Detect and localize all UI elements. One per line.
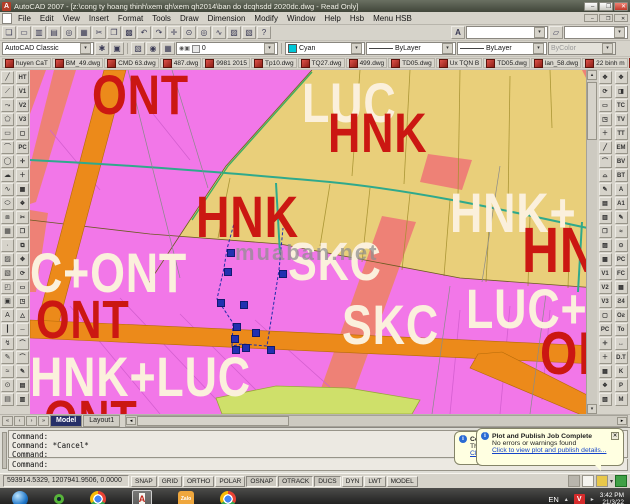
drawing-file-button[interactable]: BM_49.dwg	[52, 58, 103, 68]
dim-style-combo[interactable]: ▾	[564, 26, 628, 39]
modify-tool-icon[interactable]: PC	[599, 323, 612, 336]
drawing-file-button[interactable]: TQ27.dwg	[298, 58, 345, 68]
modify-tool-icon[interactable]: ✎	[599, 183, 612, 196]
selection-grip[interactable]	[217, 299, 225, 307]
modify-tool-icon[interactable]: V2	[599, 281, 612, 294]
dwg-file-icon	[5, 59, 14, 68]
chevron-down-icon: ▾	[602, 43, 613, 54]
custom-tool-button[interactable]: Oƨ	[615, 309, 628, 322]
menu-item[interactable]: Modify	[250, 14, 282, 23]
draw-tool-icon[interactable]: ⬭	[1, 197, 14, 210]
tab-nav-icon[interactable]: »	[38, 416, 49, 426]
modify-tool-icon[interactable]: ▨	[599, 239, 612, 252]
draw-tool-icon[interactable]: ✎	[1, 351, 14, 364]
draw-tool-icon[interactable]: ⧈	[1, 211, 14, 224]
status-toggle-button[interactable]: OSNAP	[246, 476, 277, 487]
layer-combo[interactable]: ◉▣ 0 ▾	[176, 42, 278, 55]
text-style-icon[interactable]: A	[451, 26, 465, 39]
windows-taskbar: A Zalo EN ▴ V ▸ 3:42 PM 21/3/22	[0, 488, 630, 504]
info-icon: i	[459, 435, 467, 443]
autocad-icon: A	[139, 493, 146, 504]
layers-properties-toolbar: AutoCAD Classic ▾ ✱▣ ▧◉▦ ◉▣ 0 ▾ Cyan ▾ B…	[0, 41, 630, 57]
draw-tool-icon[interactable]: ▧	[1, 267, 14, 280]
chevron-down-icon[interactable]: ▾	[351, 43, 362, 54]
zalo-icon[interactable]: Zalo	[178, 491, 194, 504]
custom-tool-button[interactable]: PC	[615, 253, 628, 266]
custom-tool-button[interactable]: ✥	[16, 253, 29, 266]
draw-tool-icon[interactable]: ≈	[1, 365, 14, 378]
draw-tool-icon[interactable]: ∿	[1, 183, 14, 196]
tab-nav-icon[interactable]: «	[2, 416, 13, 426]
custom-tool-button[interactable]: TV	[615, 113, 628, 126]
status-bar: 593914.5329, 1207941.9506, 0.0000 SNAPGR…	[0, 473, 630, 488]
status-toggle-button[interactable]: LWT	[364, 476, 385, 487]
modify-tool-icon[interactable]: ▤	[599, 197, 612, 210]
drawing-file-label: 9981 2015	[216, 60, 247, 67]
dwg-file-icon	[301, 59, 310, 68]
tray-expand-icon[interactable]: ▴	[565, 496, 568, 503]
draw-toolbar: ╱⟋⤳⬠▭⌒◯☁∿⬭⧈▦·▨▧◰▣A┃↯✎≈⊙▤ HTV1V2V3▢PC✛＋▦❖…	[0, 70, 30, 414]
custom-tool-button[interactable]: ❖	[16, 197, 29, 210]
layer-states-icon[interactable]: ◉	[146, 42, 160, 55]
command-window-grip[interactable]	[2, 432, 7, 469]
custom-tool-button[interactable]: ◳	[16, 295, 29, 308]
modify-tool-icon[interactable]: V3	[599, 295, 612, 308]
dwg-file-icon	[107, 59, 116, 68]
linetype-sample	[369, 48, 393, 49]
custom-tool-button[interactable]: HT	[16, 71, 29, 84]
draw-tool-icon[interactable]: ▤	[1, 393, 14, 406]
custom-tool-button[interactable]: ⧉	[16, 239, 29, 252]
green-ring-app-icon[interactable]	[54, 494, 64, 504]
custom-tool-button[interactable]: ✂	[16, 211, 29, 224]
dwg-file-icon	[163, 59, 172, 68]
title-bar: A AutoCAD 2007 - [z:\cong ty hoang thinh…	[0, 0, 630, 12]
custom-tool-button[interactable]: A1	[615, 197, 628, 210]
minimize-button[interactable]: –	[584, 2, 598, 11]
drawing-file-label: huyen CaT	[16, 60, 48, 67]
balloon-title: Plot and Publish Job Complete	[492, 433, 592, 440]
clean-screen-button[interactable]	[615, 475, 627, 487]
info-icon: i	[481, 432, 489, 440]
balloon-link[interactable]: Click to view plot and publish details..…	[492, 447, 619, 454]
draw-tool-icon[interactable]: ↯	[1, 337, 14, 350]
autocad-window: A AutoCAD 2007 - [z:\cong ty hoang thinh…	[0, 0, 630, 504]
workspace-settings-icon[interactable]: ✱	[95, 42, 109, 55]
modify-tool-icon[interactable]: ⟳	[599, 85, 612, 98]
vertical-scroll-thumb[interactable]	[587, 82, 597, 140]
autocad-app-icon: A	[2, 2, 11, 11]
browser-sphere-icon[interactable]	[12, 491, 28, 504]
custom-tool-button[interactable]: ◨	[615, 85, 628, 98]
draw-tool-icon[interactable]: ·	[1, 239, 14, 252]
dwg-file-icon	[55, 59, 64, 68]
dim-style-icon[interactable]: ▱	[549, 26, 563, 39]
modify-tool-icon[interactable]: ╱	[599, 141, 612, 154]
status-toggle-button[interactable]: SNAP	[131, 476, 157, 487]
modify-tool-icon[interactable]: ▩	[599, 253, 612, 266]
drawing-file-label: Ux TQN B	[450, 60, 480, 67]
selection-grip[interactable]	[242, 344, 250, 352]
horizontal-scroll-thumb[interactable]	[137, 416, 289, 426]
custom-tool-button[interactable]: BT	[615, 169, 628, 182]
drawing-file-label: TQ27.dwg	[312, 60, 342, 67]
draw-tool-icon[interactable]: ⌒	[1, 141, 14, 154]
chrome-icon[interactable]	[90, 491, 106, 504]
plot-preview-icon[interactable]: ◎	[62, 26, 76, 39]
status-toggle-button[interactable]: POLAR	[215, 476, 245, 487]
drawing-file-button[interactable]: 499.dwg	[346, 58, 388, 68]
selection-grip[interactable]	[232, 346, 240, 354]
tray-arrow-icon[interactable]: ▸	[591, 496, 594, 503]
modify-tool-icon[interactable]: ＋	[599, 351, 612, 364]
custom-tool-button[interactable]: A	[615, 183, 628, 196]
custom-tool-button[interactable]: D.T	[615, 351, 628, 364]
tab-nav-icon[interactable]: ‹	[14, 416, 25, 426]
drawing-file-button[interactable]: lan_58.dwg	[531, 58, 581, 68]
custom-tool-button[interactable]: EM	[615, 141, 628, 154]
undo-icon[interactable]: ↶	[137, 26, 151, 39]
drawing-file-button[interactable]: 487.dwg	[160, 58, 202, 68]
custom-tool-button[interactable]: ✥	[615, 71, 628, 84]
custom-tool-button[interactable]: ▤	[16, 379, 29, 392]
draw-tool-icon[interactable]: ⤳	[1, 99, 14, 112]
draw-tool-icon[interactable]: ▦	[1, 225, 14, 238]
pan-icon[interactable]: ✛	[167, 26, 181, 39]
modify-tool-icon[interactable]: ▢	[599, 309, 612, 322]
modify-tool-icon[interactable]: ▧	[599, 393, 612, 406]
language-indicator[interactable]: EN	[548, 495, 558, 504]
toolbar-lock-icon[interactable]	[596, 475, 608, 487]
selection-grip[interactable]	[233, 323, 241, 331]
modify-tool-icon[interactable]: ✥	[599, 71, 612, 84]
custom-tool-button[interactable]: V1	[16, 85, 29, 98]
lineweight-combo[interactable]: ByLayer ▾	[457, 42, 547, 55]
close-button[interactable]: ✕	[614, 2, 628, 11]
dwg-file-icon	[439, 59, 448, 68]
cut-icon[interactable]: ✂	[92, 26, 106, 39]
balloon-close-icon[interactable]: ✕	[611, 432, 619, 440]
menu-item[interactable]: Menu HSB	[369, 14, 416, 23]
standard-toolbar: ❏▭▥▤◎▦✂❐▩↶↷✛⊙◎∿▨▧? A ▾ ▱ ▾	[0, 25, 630, 41]
selection-grip[interactable]	[227, 249, 235, 257]
help-icon[interactable]: ?	[257, 26, 271, 39]
drawing-file-button[interactable]: TD05.dwg	[483, 58, 530, 68]
modify-tool-icon[interactable]: ❖	[599, 379, 612, 392]
lineweight-value: ByLayer	[486, 45, 512, 52]
drawing-file-button[interactable]: Tp10.dwg	[251, 58, 297, 68]
chrome-icon[interactable]	[220, 491, 236, 504]
custom-tool-button[interactable]: V3	[16, 113, 29, 126]
custom-tool-button[interactable]: ▦	[615, 281, 628, 294]
custom-tool-button[interactable]: P	[615, 379, 628, 392]
draw-tool-icon[interactable]: ▨	[1, 253, 14, 266]
modify-tool-icon[interactable]: ▭	[599, 99, 612, 112]
draw-tool-icon[interactable]: ⊙	[1, 379, 14, 392]
scroll-down-icon[interactable]: ▾	[587, 404, 597, 414]
menu-item[interactable]: Draw	[176, 14, 203, 23]
draw-tool-icon[interactable]: A	[1, 309, 14, 322]
status-toggle-button[interactable]: DUCS	[314, 476, 340, 487]
drawing-file-icon	[2, 13, 12, 24]
draw-tool-icon[interactable]: ▣	[1, 295, 14, 308]
workspace-combo[interactable]: AutoCAD Classic ▾	[2, 42, 94, 55]
menu-item[interactable]: Format	[114, 14, 147, 23]
custom-tool-button[interactable]: To	[615, 323, 628, 336]
menu-item[interactable]: Hsb	[346, 14, 368, 23]
v-app-tray-icon[interactable]: V	[574, 494, 585, 504]
drawing-file-button[interactable]: 22 binh m	[582, 58, 628, 68]
save-icon[interactable]: ▥	[32, 26, 46, 39]
custom-tool-button[interactable]: ≈	[615, 225, 628, 238]
chevron-down-icon[interactable]: ▾	[534, 27, 545, 38]
drawing-file-label: BM_49.dwg	[66, 60, 100, 67]
menu-item[interactable]: Help	[320, 14, 344, 23]
custom-tool-button[interactable]: BV	[615, 155, 628, 168]
drawing-file-button[interactable]: CMD 63.dwg	[104, 58, 159, 68]
dwg-file-icon	[585, 59, 594, 68]
custom-tool-button[interactable]: △	[16, 309, 29, 322]
layer-value: 0	[202, 45, 206, 52]
plot-details-icon[interactable]	[582, 475, 594, 487]
vertical-scrollbar[interactable]: ▴ ▾	[586, 70, 597, 414]
custom-tool-button[interactable]: ⌒	[16, 351, 29, 364]
color-value: Cyan	[299, 45, 315, 52]
draw-tool-icon[interactable]: ▭	[1, 127, 14, 140]
redo-icon[interactable]: ↷	[152, 26, 166, 39]
workspace-value: AutoCAD Classic	[5, 45, 59, 52]
selection-grip[interactable]	[240, 301, 248, 309]
layer-properties-icon[interactable]: ▧	[131, 42, 145, 55]
drawing-file-label: 499.dwg	[360, 60, 385, 67]
maximize-button[interactable]: ❐	[599, 2, 613, 11]
design-center-icon[interactable]: ▧	[242, 26, 256, 39]
menu-item[interactable]: Dimension	[204, 14, 250, 23]
status-tray-arrow-icon[interactable]: ▾	[610, 478, 613, 485]
custom-tool-button[interactable]: ▦	[16, 183, 29, 196]
chevron-down-icon[interactable]: ▾	[533, 43, 544, 54]
draw-tool-icon[interactable]: ⬠	[1, 113, 14, 126]
copy-icon[interactable]: ❐	[107, 26, 121, 39]
selection-grip[interactable]	[279, 270, 287, 278]
custom-tool-button[interactable]: Ƨ4	[615, 295, 628, 308]
status-toggle-button[interactable]: DYN	[342, 476, 364, 487]
custom-tool-button[interactable]: ✎	[16, 365, 29, 378]
custom-tool-button[interactable]: ─	[16, 323, 29, 336]
menu-bar: FileEditViewInsertFormatToolsDrawDimensi…	[0, 12, 630, 25]
clock-time: 3:42 PM	[600, 492, 624, 499]
open-icon[interactable]: ▭	[17, 26, 31, 39]
land-use-map	[30, 70, 597, 414]
menu-item[interactable]: File	[14, 14, 35, 23]
draw-tool-icon[interactable]: ╱	[1, 71, 14, 84]
text-style-combo[interactable]: ▾	[466, 26, 548, 39]
status-toggle-button[interactable]: OTRACK	[278, 476, 313, 487]
scroll-right-icon[interactable]: ▸	[617, 417, 627, 425]
modify-tool-icon[interactable]: V1	[599, 267, 612, 280]
drawing-file-label: Tp10.dwg	[265, 60, 294, 67]
layer-color-swatch	[192, 45, 200, 53]
modify-toolbar: ✥⟳▭◳＋╱⌒⌓✎▤▥❐▨▩V1V2V3▢PC✛＋▦❖▧ ✥◨TCTVTTEMB…	[597, 70, 630, 414]
linetype-value: ByLayer	[395, 45, 421, 52]
zoom-window-icon[interactable]: ◎	[197, 26, 211, 39]
chevron-down-icon[interactable]: ▾	[264, 43, 275, 54]
drawing-file-label: 22 binh m	[596, 60, 625, 67]
draw-tool-icon[interactable]: ☁	[1, 169, 14, 182]
drawing-file-button[interactable]: Ux TQN B	[436, 58, 483, 68]
drawing-file-label: TD05.dwg	[497, 60, 527, 67]
workspace-save-icon[interactable]: ▣	[110, 42, 124, 55]
dwg-file-icon	[486, 59, 495, 68]
color-combo[interactable]: Cyan ▾	[285, 42, 365, 55]
chevron-down-icon[interactable]: ▾	[442, 43, 453, 54]
drawing-file-button[interactable]: 9981 2015	[202, 58, 250, 68]
menu-item[interactable]: Insert	[85, 14, 113, 23]
drawing-canvas[interactable]: ONTLUCHNKHNKHNK+HNC+ONTSKCSKCONTLUC+ONHN…	[30, 70, 597, 414]
custom-tool-button[interactable]: V2	[16, 99, 29, 112]
menu-item[interactable]: Tools	[148, 14, 175, 23]
dwg-file-icon	[349, 59, 358, 68]
selection-grip[interactable]	[252, 329, 260, 337]
plot-publish-balloon[interactable]: i Plot and Publish Job Complete ✕ No err…	[476, 428, 624, 466]
zoom-realtime-icon[interactable]: ⊙	[182, 26, 196, 39]
custom-tool-button[interactable]: FC	[615, 267, 628, 280]
drawing-files-toolbar: huyen CaT BM_49.dwg CMD 63.dwg 487.dwg 9…	[0, 57, 630, 70]
custom-tool-button[interactable]: TC	[615, 99, 628, 112]
plotstyle-value: ByColor	[551, 45, 576, 52]
draw-tool-icon[interactable]: ┃	[1, 323, 14, 336]
layer-state-icons: ◉▣	[179, 45, 190, 52]
custom-tool-button[interactable]: ▭	[16, 281, 29, 294]
custom-tool-button[interactable]: M	[615, 393, 628, 406]
custom-tool-button[interactable]: ❐	[16, 225, 29, 238]
modify-tool-icon[interactable]: ◳	[599, 113, 612, 126]
properties-icon[interactable]: ▨	[227, 26, 241, 39]
scroll-up-icon[interactable]: ▴	[587, 70, 597, 80]
linetype-combo[interactable]: ByLayer ▾	[366, 42, 456, 55]
modify-tool-icon[interactable]: ⌓	[599, 169, 612, 182]
selection-grip[interactable]	[224, 268, 232, 276]
dwg-file-icon	[534, 59, 543, 68]
custom-tool-button[interactable]: ⊙	[615, 239, 628, 252]
layout1-tab[interactable]: Layout1	[83, 415, 120, 427]
custom-tool-button[interactable]: K	[615, 365, 628, 378]
publish-icon[interactable]: ▦	[77, 26, 91, 39]
modify-tool-icon[interactable]: ⌒	[599, 155, 612, 168]
drawing-file-label: 487.dwg	[174, 60, 199, 67]
custom-tool-button[interactable]: ✎	[615, 211, 628, 224]
custom-tool-button[interactable]: ▥	[16, 393, 29, 406]
status-toggle-button[interactable]: GRID	[158, 476, 182, 487]
plot-icon[interactable]: ▤	[47, 26, 61, 39]
window-title: AutoCAD 2007 - [z:\cong ty hoang thinh\x…	[14, 2, 581, 11]
modify-tool-icon[interactable]: ▥	[599, 211, 612, 224]
tab-nav-icon[interactable]: ›	[26, 416, 37, 426]
drawing-file-label: TD05.dwg	[402, 60, 432, 67]
notification-area: i Comm The easy w Click here. i Plot and…	[454, 426, 626, 472]
drawing-file-button[interactable]: TD05.dwg	[388, 58, 435, 68]
draw-tool-icon[interactable]: ◰	[1, 281, 14, 294]
custom-tool-button[interactable]: TT	[615, 127, 628, 140]
menu-item[interactable]: Edit	[36, 14, 58, 23]
clock-date: 21/3/22	[600, 499, 624, 504]
mdi-restore-button[interactable]: ❐	[599, 14, 613, 22]
draw-tool-icon[interactable]: ◯	[1, 155, 14, 168]
modify-tool-icon[interactable]: ❐	[599, 225, 612, 238]
mdi-close-button[interactable]: ✕	[614, 14, 628, 22]
scroll-left-icon[interactable]: ◂	[126, 417, 136, 425]
menu-item[interactable]: View	[59, 14, 84, 23]
drawing-file-button[interactable]: huyen CaT	[2, 58, 51, 68]
color-swatch-cyan	[288, 44, 297, 53]
custom-tool-button[interactable]: ＋	[16, 169, 29, 182]
autocad-taskbar-button[interactable]: A	[132, 490, 152, 504]
zoom-previous-icon[interactable]: ∿	[212, 26, 226, 39]
custom-tool-button[interactable]: ▢	[16, 127, 29, 140]
custom-tool-button[interactable]: ⌒	[16, 337, 29, 350]
modify-tool-icon[interactable]: ＋	[599, 127, 612, 140]
selection-grip[interactable]	[231, 335, 239, 343]
modify-tool-icon[interactable]: ✛	[599, 337, 612, 350]
status-toggle-button[interactable]: MODEL	[387, 476, 418, 487]
new-icon[interactable]: ❏	[2, 26, 16, 39]
lineweight-sample	[460, 48, 484, 49]
drawing-file-label: CMD 63.dwg	[118, 60, 156, 67]
custom-tool-button[interactable]: ↔	[615, 337, 628, 350]
modify-tool-icon[interactable]: ▦	[599, 365, 612, 378]
model-tab[interactable]: Model	[50, 415, 82, 427]
status-toggle-button[interactable]: ORTHO	[183, 476, 214, 487]
plotstyle-combo: ByColor ▾	[548, 42, 616, 55]
custom-tool-button[interactable]: ✛	[16, 155, 29, 168]
dwg-file-icon	[254, 59, 263, 68]
mdi-minimize-button[interactable]: –	[584, 14, 598, 22]
draw-tool-icon[interactable]: ⟋	[1, 85, 14, 98]
balloon-body: No errors or warnings found	[492, 440, 619, 447]
drawing-file-label: lan_58.dwg	[545, 60, 578, 67]
custom-tool-button[interactable]: PC	[16, 141, 29, 154]
paste-icon[interactable]: ▩	[122, 26, 136, 39]
taskbar-clock[interactable]: 3:42 PM 21/3/22	[600, 492, 624, 504]
dwg-file-icon	[205, 59, 214, 68]
menu-item[interactable]: Window	[283, 14, 319, 23]
custom-tool-button[interactable]: ⟳	[16, 267, 29, 280]
selection-grip[interactable]	[267, 346, 275, 354]
coordinates-readout[interactable]: 593914.5329, 1207941.9506, 0.0000	[3, 475, 129, 487]
chevron-down-icon[interactable]: ▾	[80, 43, 91, 54]
chevron-down-icon[interactable]: ▾	[614, 27, 625, 38]
layer-previous-icon[interactable]: ▦	[161, 42, 175, 55]
plot-status-icon[interactable]	[568, 475, 580, 487]
dwg-file-icon	[391, 59, 400, 68]
